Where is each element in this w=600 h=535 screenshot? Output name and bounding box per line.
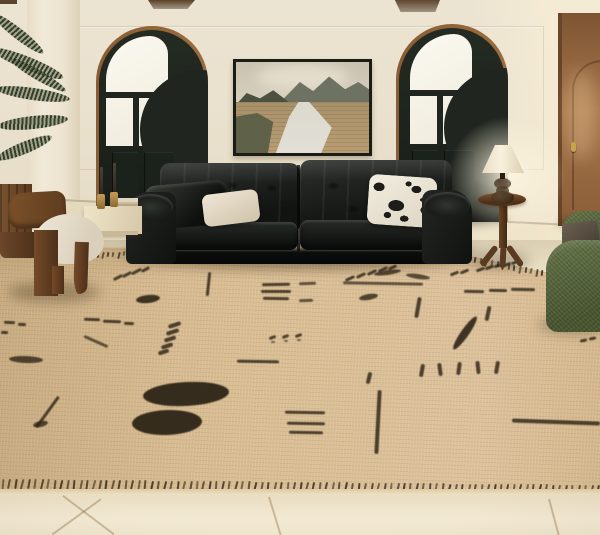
- candle: [113, 163, 116, 195]
- mullion-vertical-right: [437, 96, 443, 144]
- sofa-arm-roll-right: [424, 192, 470, 218]
- lamp-neck: [500, 172, 505, 179]
- living-room-photo: [0, 0, 600, 535]
- sofa-center-seam: [297, 165, 300, 251]
- door-handle: [571, 142, 576, 152]
- accent-chair-leg: [73, 242, 89, 294]
- landscape-painting: [233, 59, 372, 156]
- planter-stand: [0, 232, 38, 258]
- candle: [100, 167, 103, 197]
- green-armchair-seat: [546, 240, 600, 332]
- lamp-base-gourd: [491, 191, 514, 204]
- ceiling-beam-corner: [0, 0, 17, 4]
- ceiling-beam-right: [393, 0, 440, 12]
- ceiling-beam-left: [148, 0, 195, 9]
- candlestick-holder: [97, 194, 105, 209]
- table-leg: [499, 246, 506, 268]
- accent-chair-leg: [52, 266, 64, 294]
- beige-area-rug: [0, 240, 600, 498]
- tile-floor-foreground: [0, 495, 600, 535]
- cream-pillow: [201, 189, 260, 228]
- table-pedestal-column: [499, 203, 507, 248]
- candlestick-holder: [110, 192, 118, 207]
- mullion-vertical-left: [133, 98, 139, 146]
